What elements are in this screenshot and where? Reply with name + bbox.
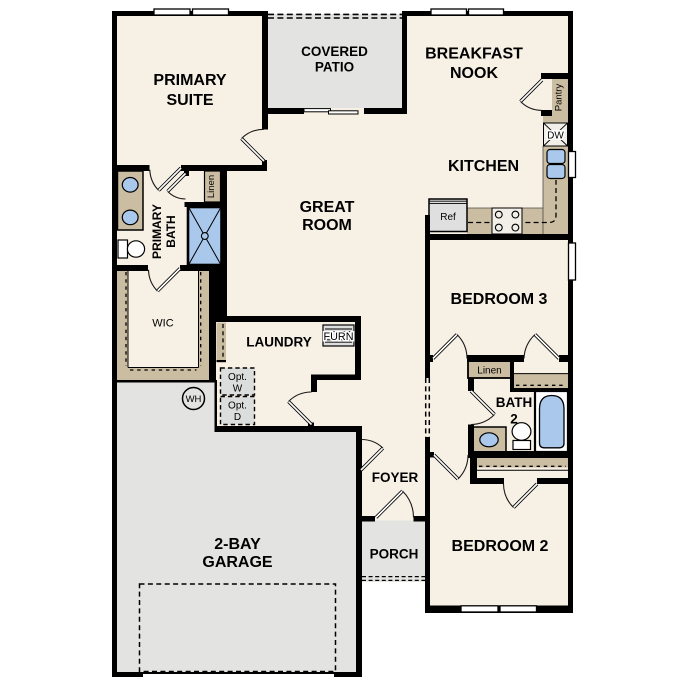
svg-text:W: W (233, 384, 243, 395)
svg-text:FURN: FURN (324, 331, 354, 343)
svg-text:NOOK: NOOK (450, 65, 498, 82)
svg-text:BEDROOM 3: BEDROOM 3 (451, 291, 548, 308)
svg-text:WIC: WIC (152, 318, 173, 330)
svg-text:PATIO: PATIO (315, 60, 354, 75)
svg-text:PORCH: PORCH (370, 547, 419, 562)
svg-text:BATH: BATH (496, 395, 533, 410)
svg-text:WH: WH (186, 394, 202, 405)
svg-text:PRIMARY: PRIMARY (153, 72, 227, 89)
svg-text:GREAT: GREAT (300, 199, 355, 216)
svg-text:D: D (234, 412, 241, 423)
svg-text:COVERED: COVERED (301, 44, 368, 59)
svg-text:GARAGE: GARAGE (202, 554, 273, 571)
svg-text:Linen: Linen (206, 175, 217, 198)
svg-text:Ref: Ref (440, 212, 456, 223)
svg-text:BATH: BATH (164, 215, 178, 247)
svg-text:2: 2 (510, 412, 518, 427)
svg-text:BEDROOM 2: BEDROOM 2 (452, 538, 549, 555)
svg-text:Opt.: Opt. (228, 372, 247, 383)
svg-text:2-BAY: 2-BAY (214, 536, 261, 553)
svg-text:Opt.: Opt. (228, 401, 247, 412)
svg-text:DW: DW (547, 131, 564, 142)
svg-text:FOYER: FOYER (372, 470, 419, 485)
svg-text:BREAKFAST: BREAKFAST (425, 46, 523, 63)
svg-text:ROOM: ROOM (302, 217, 352, 234)
svg-text:SUITE: SUITE (166, 92, 213, 109)
svg-text:PRIMARY: PRIMARY (150, 204, 164, 259)
svg-text:KITCHEN: KITCHEN (448, 158, 519, 175)
svg-text:Linen: Linen (477, 366, 501, 377)
svg-text:LAUNDRY: LAUNDRY (246, 335, 312, 350)
svg-text:Pantry: Pantry (554, 84, 565, 112)
